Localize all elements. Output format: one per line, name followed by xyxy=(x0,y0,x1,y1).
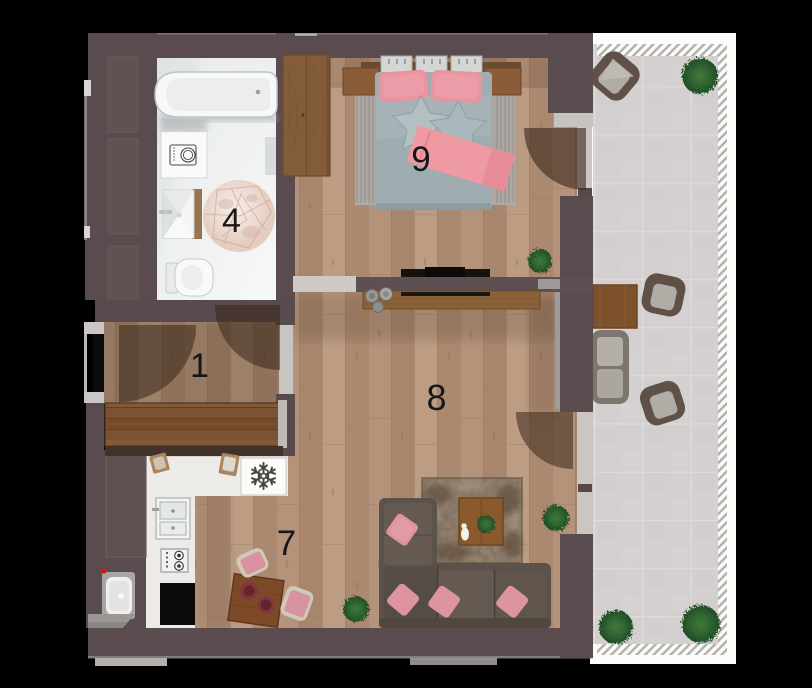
svg-text:9: 9 xyxy=(411,140,430,179)
svg-text:4: 4 xyxy=(222,202,241,240)
svg-text:7: 7 xyxy=(277,524,296,563)
svg-text:1: 1 xyxy=(190,347,209,385)
svg-text:8: 8 xyxy=(426,377,446,418)
